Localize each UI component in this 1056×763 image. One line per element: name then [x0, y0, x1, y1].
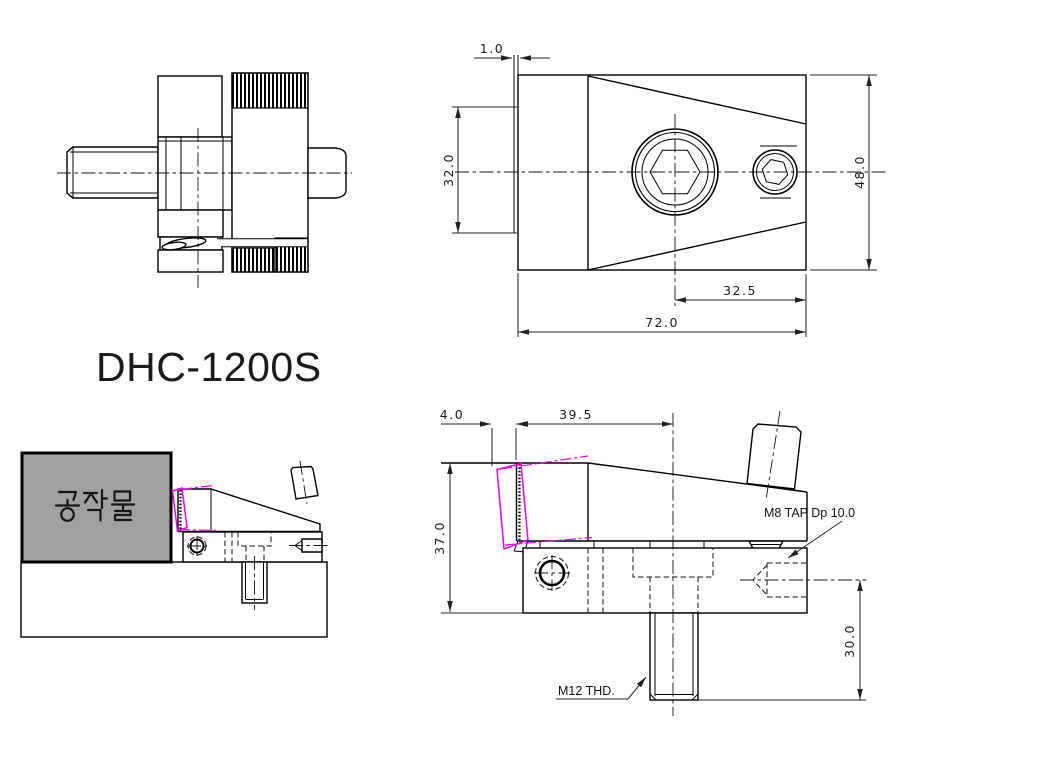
dim-text: 37.0 — [432, 521, 447, 555]
side-view: 4.0 39.5 37.0 30.0 M8 TAP Dp 10.0 M12 TH… — [432, 407, 866, 716]
dim-text: 39.5 — [559, 407, 593, 422]
dim-text: 1.0 — [480, 41, 504, 56]
clamp-body-top-view — [158, 137, 232, 272]
dim-text: 4.0 — [440, 407, 464, 422]
label-text: M8 TAP Dp 10.0 — [764, 506, 855, 520]
dim-text: 48.0 — [852, 155, 867, 189]
dim-text: 30.0 — [842, 624, 857, 658]
phantom-jaw — [497, 464, 528, 550]
workpiece-block — [22, 453, 171, 562]
dim-text: 72.0 — [645, 315, 679, 330]
front-view: 1.0 32.0 48.0 32.5 72.0 — [441, 41, 888, 337]
dim-text: 32.5 — [723, 283, 757, 298]
top-view — [57, 73, 352, 288]
dimension-hole-offset-32-5: 32.5 — [675, 274, 806, 337]
m12-stud — [650, 613, 698, 700]
clamp-knob — [747, 424, 801, 489]
dimension-height-37-0: 37.0 — [432, 463, 450, 612]
drawing-canvas: 1.0 32.0 48.0 32.5 72.0 DHC-1200 — [0, 0, 1056, 763]
label-text: M12 THD. — [558, 684, 615, 698]
dimension-overall-width-72-0: 72.0 — [518, 273, 806, 337]
clamp-base-side — [523, 548, 807, 613]
dimension-overall-height-48-0: 48.0 — [810, 75, 877, 270]
m12-stud-small — [242, 556, 267, 610]
label-m12-thread: M12 THD. — [556, 677, 646, 699]
dimension-stud-length-30-0: 30.0 — [842, 580, 860, 700]
dimension-edge-1-0: 1.0 — [474, 41, 550, 58]
dimension-stroke-4-0: 4.0 — [440, 407, 540, 466]
base-plate — [21, 562, 327, 637]
clamp-knob-small — [291, 467, 318, 500]
clamp-stud-top-view — [67, 147, 158, 198]
assembly-view: 공작물 — [21, 453, 330, 637]
clamp-upper-block — [158, 76, 222, 137]
dimension-inner-height-32-0: 32.0 — [441, 107, 517, 233]
drawing-page: 1.0 32.0 48.0 32.5 72.0 DHC-1200 — [0, 0, 1056, 763]
dimension-top-length-39-5: 39.5 — [516, 407, 673, 424]
model-title: DHC-1200S — [96, 344, 322, 390]
dim-text: 32.0 — [441, 153, 456, 187]
